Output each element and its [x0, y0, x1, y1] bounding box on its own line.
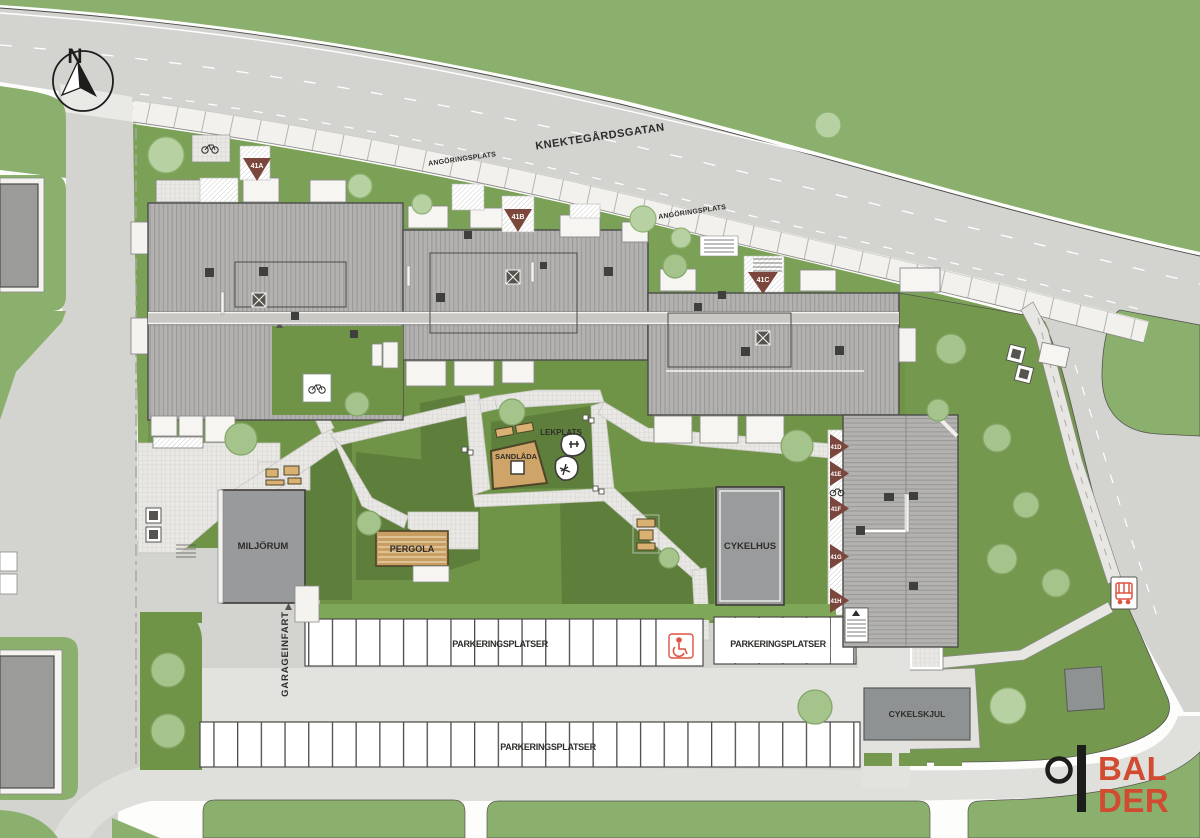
svg-text:41A: 41A	[251, 163, 264, 170]
svg-text:41D: 41D	[830, 445, 842, 451]
svg-text:SANDLÅDA: SANDLÅDA	[495, 452, 538, 461]
svg-text:DER: DER	[1098, 782, 1169, 819]
svg-text:PERGOLA: PERGOLA	[390, 544, 435, 554]
svg-text:PARKERINGSPLATSER: PARKERINGSPLATSER	[500, 742, 596, 752]
svg-text:PARKERINGSPLATSER: PARKERINGSPLATSER	[452, 639, 548, 649]
svg-text:41G: 41G	[830, 555, 842, 561]
svg-text:LEKPLATS: LEKPLATS	[540, 428, 582, 437]
svg-text:PARKERINGSPLATSER: PARKERINGSPLATSER	[730, 639, 826, 649]
svg-text:N: N	[67, 45, 82, 68]
svg-text:CYKELSKJUL: CYKELSKJUL	[889, 709, 946, 719]
svg-text:GARAGEINFART: GARAGEINFART	[280, 611, 291, 697]
svg-text:41C: 41C	[757, 277, 770, 284]
svg-text:41E: 41E	[831, 472, 842, 478]
svg-text:41F: 41F	[831, 507, 842, 513]
svg-text:MILJÖRUM: MILJÖRUM	[238, 541, 289, 552]
svg-text:41H: 41H	[830, 599, 841, 605]
svg-text:CYKELHUS: CYKELHUS	[724, 541, 776, 552]
svg-text:41B: 41B	[512, 214, 525, 221]
